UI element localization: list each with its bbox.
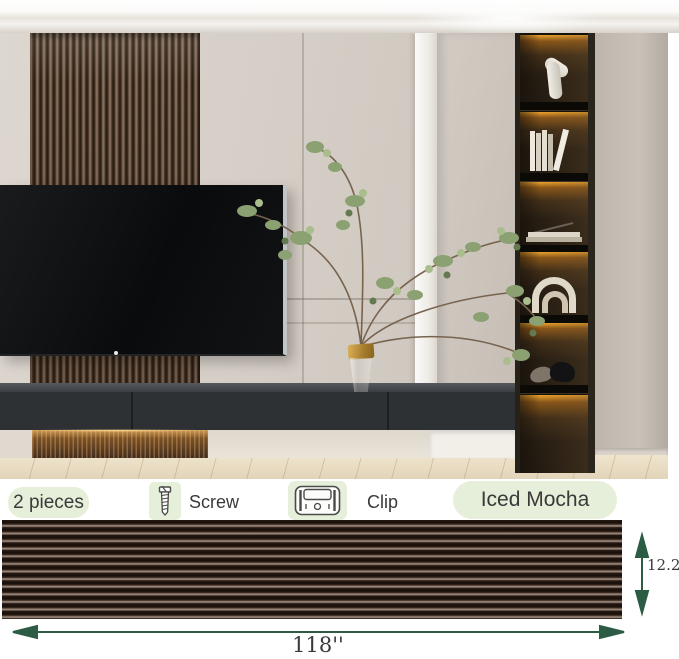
- vase-gold-rim: [348, 343, 375, 360]
- drawer-seam: [131, 392, 133, 430]
- height-dimension-label: 12.2'': [647, 556, 679, 574]
- media-console: [0, 392, 520, 430]
- lit-slat-base: [32, 428, 208, 458]
- product-infographic: 2 pieces Screw Clip Ic: [0, 0, 679, 659]
- lifestyle-photo: [0, 0, 679, 479]
- baseboard: [0, 430, 32, 458]
- tv-led-indicator: [114, 351, 118, 355]
- under-cabinet-light: [26, 429, 210, 432]
- plant-branches: [215, 55, 560, 395]
- ceiling-molding: [0, 0, 679, 33]
- drawer-seam: [387, 392, 389, 430]
- width-dimension-label: 118'': [238, 633, 398, 657]
- shelf-niche: [520, 395, 588, 473]
- baseboard: [208, 430, 430, 458]
- cabinet-base: [430, 430, 517, 458]
- cabinet-door: [595, 33, 668, 455]
